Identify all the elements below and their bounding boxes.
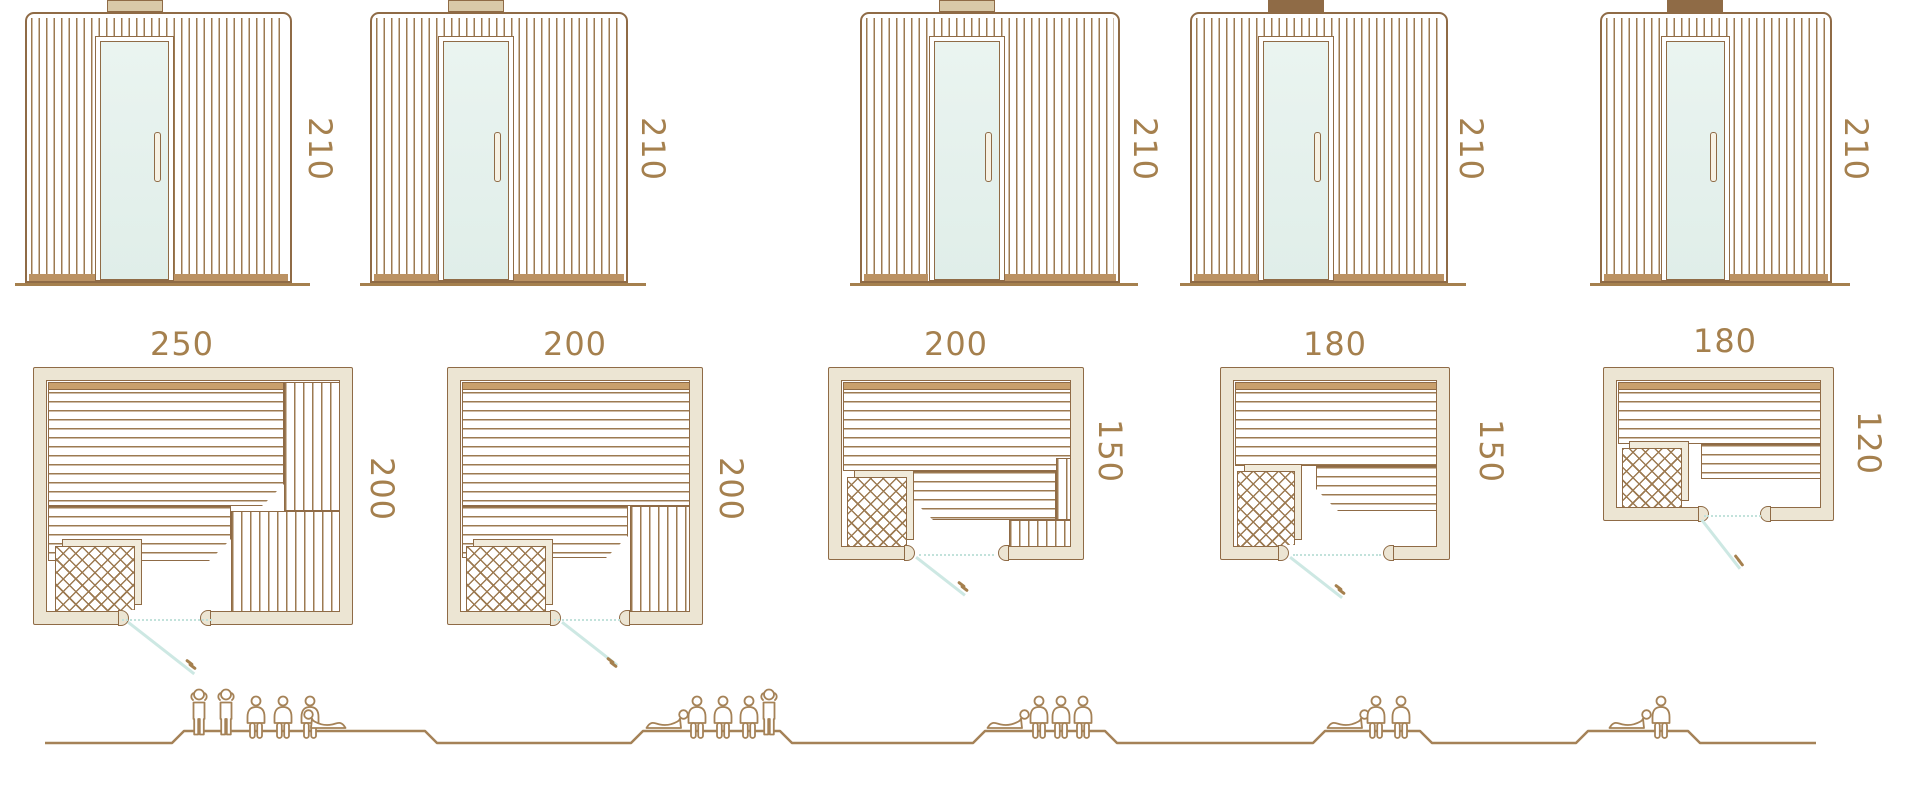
person-standing-icon (187, 688, 211, 736)
person-sitting-icon (270, 696, 296, 740)
person-sitting-icon (1363, 696, 1389, 740)
person-sitting-icon (1648, 696, 1674, 740)
person-sitting-icon (243, 696, 269, 740)
person-standing-icon (214, 688, 238, 736)
person-lying-icon (645, 707, 689, 733)
person-standing-icon (757, 688, 781, 736)
person-lying-icon (1608, 707, 1652, 733)
person-sitting-icon (1070, 696, 1096, 740)
person-sitting-icon (1388, 696, 1414, 740)
sauna-comparison-diagram: 210 210 210 (0, 0, 1920, 789)
capacity-ground-line (0, 0, 1920, 789)
person-sitting-icon (710, 696, 736, 740)
person-lying-icon (986, 707, 1030, 733)
person-sitting-icon (684, 696, 710, 740)
person-lying-icon (303, 707, 347, 733)
